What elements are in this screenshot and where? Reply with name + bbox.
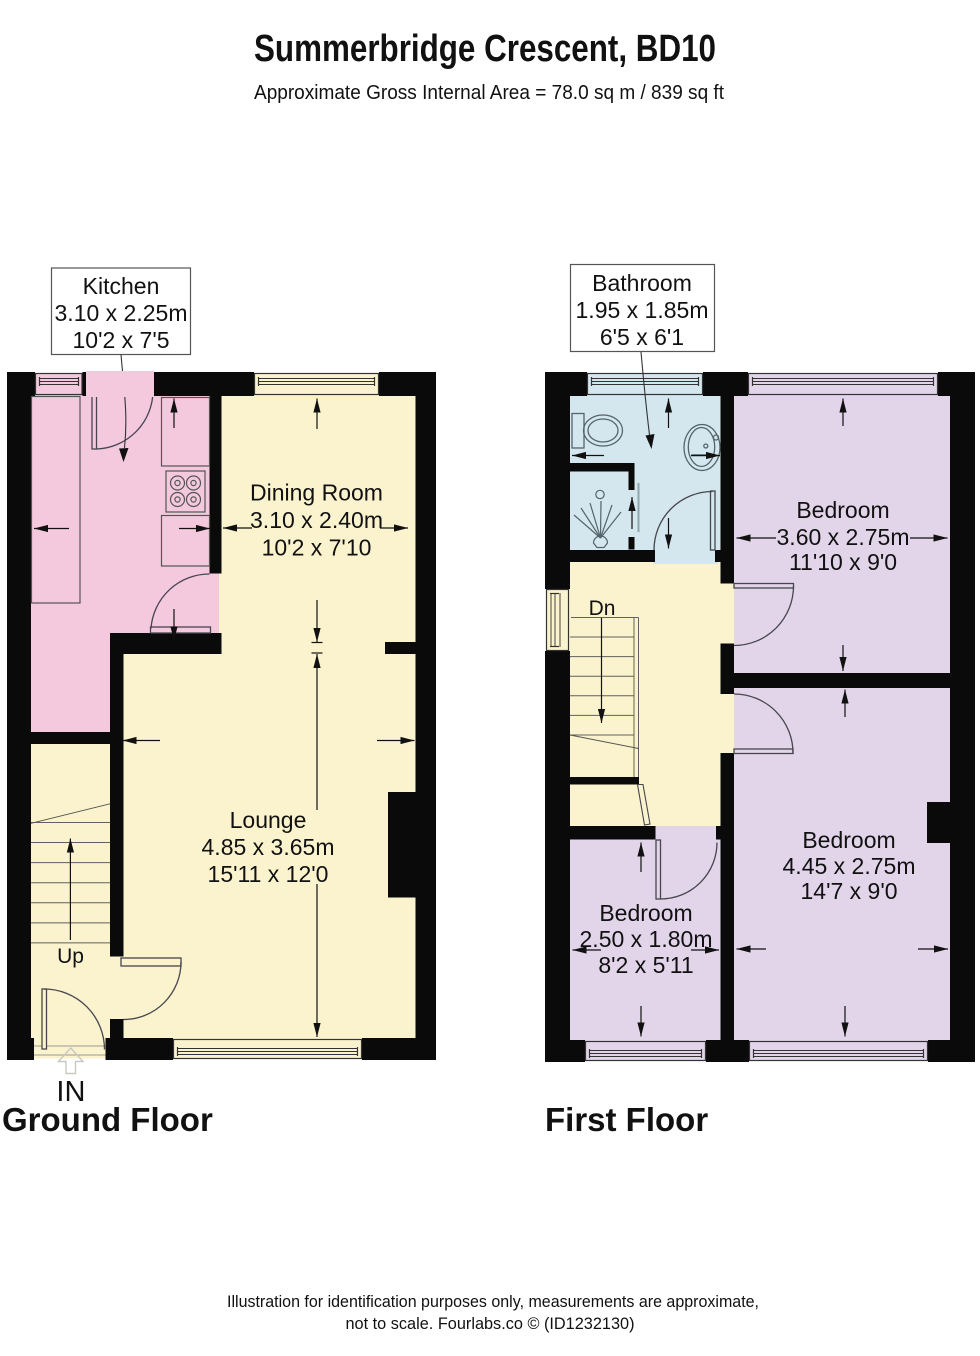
- svg-text:2.50 x 1.80m: 2.50 x 1.80m: [580, 926, 713, 952]
- svg-text:6'5 x 6'1: 6'5 x 6'1: [600, 324, 684, 350]
- svg-text:Illustration for identificatio: Illustration for identification purposes…: [227, 1292, 759, 1311]
- svg-text:4.45 x 2.75m: 4.45 x 2.75m: [783, 853, 916, 879]
- svg-text:Kitchen: Kitchen: [83, 273, 160, 299]
- svg-text:3.10 x 2.40m: 3.10 x 2.40m: [250, 507, 383, 533]
- svg-text:Dining Room: Dining Room: [250, 480, 383, 506]
- svg-text:Ground Floor: Ground Floor: [2, 1101, 213, 1138]
- svg-text:Bedroom: Bedroom: [796, 497, 889, 523]
- svg-text:First Floor: First Floor: [545, 1101, 708, 1138]
- svg-text:Bedroom: Bedroom: [599, 900, 692, 926]
- svg-text:not to scale. Fourlabs.co © (I: not to scale. Fourlabs.co © (ID1232130): [346, 1314, 635, 1333]
- svg-text:1.95 x 1.85m: 1.95 x 1.85m: [576, 297, 709, 323]
- svg-text:Lounge: Lounge: [230, 807, 307, 833]
- svg-text:Dn: Dn: [589, 597, 616, 620]
- svg-text:Bedroom: Bedroom: [802, 827, 895, 853]
- svg-text:Summerbridge Crescent, BD10: Summerbridge Crescent, BD10: [254, 28, 716, 70]
- svg-text:Approximate Gross Internal Are: Approximate Gross Internal Area = 78.0 s…: [254, 82, 724, 104]
- svg-text:11'10 x 9'0: 11'10 x 9'0: [789, 549, 897, 575]
- svg-text:10'2 x 7'10: 10'2 x 7'10: [262, 535, 372, 561]
- svg-text:14'7 x 9'0: 14'7 x 9'0: [800, 878, 897, 904]
- svg-text:Up: Up: [57, 945, 84, 968]
- svg-text:3.10 x 2.25m: 3.10 x 2.25m: [55, 300, 188, 326]
- svg-text:10'2 x 7'5: 10'2 x 7'5: [72, 327, 169, 353]
- svg-text:15'11 x 12'0: 15'11 x 12'0: [208, 861, 329, 887]
- svg-text:3.60 x 2.75m: 3.60 x 2.75m: [777, 524, 910, 550]
- svg-text:Bathroom: Bathroom: [592, 270, 692, 296]
- svg-text:4.85 x 3.65m: 4.85 x 3.65m: [202, 834, 335, 860]
- svg-text:8'2 x 5'11: 8'2 x 5'11: [598, 952, 693, 978]
